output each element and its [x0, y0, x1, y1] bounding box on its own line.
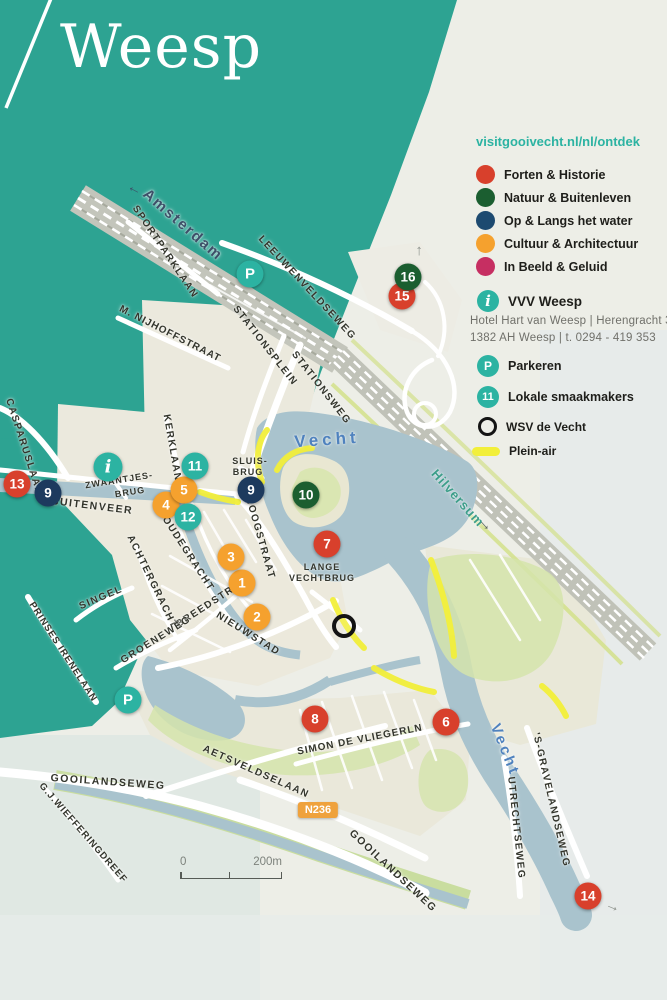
legend-category-row: Cultuur & Architectuur — [476, 234, 638, 253]
vvv-name: VVV Weesp — [508, 294, 582, 309]
marker-number: 5 — [180, 483, 188, 498]
category-dot-blue — [476, 211, 495, 230]
map-marker[interactable]: 5 — [171, 477, 198, 504]
map-marker[interactable]: 9 — [238, 477, 265, 504]
category-dot-red — [476, 165, 495, 184]
map-marker[interactable]: 8 — [302, 706, 329, 733]
scale-tick — [229, 872, 231, 878]
marker-number: P — [123, 692, 133, 709]
map-marker[interactable]: 14 — [575, 883, 602, 910]
category-label: In Beeld & Geluid — [504, 260, 608, 274]
map-marker[interactable]: 6 — [433, 709, 460, 736]
map-marker[interactable]: 1 — [229, 570, 256, 597]
vvv-address-line2: 1382 AH Weesp | t. 0294 - 419 353 — [470, 332, 656, 344]
plein-air-swatch — [472, 447, 500, 456]
map-marker[interactable]: 2 — [244, 604, 271, 631]
direction-arrow: → — [409, 244, 426, 259]
marker-number: 3 — [227, 550, 235, 565]
category-label: Natuur & Buitenleven — [504, 191, 631, 205]
map-marker[interactable]: 11 — [182, 453, 209, 480]
map-marker[interactable]: P — [115, 687, 142, 714]
parking-label: Parkeren — [508, 359, 562, 373]
marker-number: i — [105, 457, 112, 478]
map-marker[interactable]: 13 — [4, 471, 31, 498]
legend-url-link[interactable]: visitgooivecht.nl/nl/ontdek — [476, 134, 640, 149]
map-marker[interactable]: 7 — [314, 531, 341, 558]
legend-category-row: Natuur & Buitenleven — [476, 188, 631, 207]
scale-tick — [180, 872, 182, 878]
scale-line — [180, 872, 282, 879]
map-page: Weesp visitgooivecht.nl/nl/ontdek Forten… — [0, 0, 667, 1000]
legend-category-row: In Beeld & Geluid — [476, 257, 608, 276]
marker-number: 4 — [162, 498, 170, 513]
legend-category-row: Forten & Historie — [476, 165, 605, 184]
map-marker[interactable]: 12 — [175, 504, 202, 531]
legend-category-row: Op & Langs het water — [476, 211, 633, 230]
map-marker[interactable]: 3 — [218, 544, 245, 571]
map-marker[interactable]: 10 — [293, 482, 320, 509]
category-label: Forten & Historie — [504, 168, 605, 182]
category-dot-green — [476, 188, 495, 207]
legend-local-row: 11 Lokale smaakmakers — [477, 386, 634, 408]
marker-number: 10 — [298, 488, 313, 503]
category-dot-orange — [476, 234, 495, 253]
local-flavors-label: Lokale smaakmakers — [508, 390, 634, 404]
page-title: Weesp — [60, 12, 262, 82]
street-label: VECHTBRUG — [289, 573, 355, 583]
street-label: BRUG — [233, 467, 264, 477]
legend-parking-row: P Parkeren — [477, 355, 562, 377]
map-marker[interactable]: i — [94, 453, 123, 482]
marker-number: 6 — [442, 715, 450, 730]
marker-number: 8 — [311, 712, 319, 727]
marker-number: 12 — [180, 510, 195, 525]
street-label: SLUIS- — [232, 456, 268, 466]
plein-air-label: Plein-air — [509, 444, 556, 458]
scale-tick — [281, 872, 283, 878]
info-icon: i — [477, 290, 499, 312]
local-flavors-icon: 11 — [477, 386, 499, 408]
wsv-ring-icon — [478, 417, 497, 436]
scale-start-label: 0 — [180, 856, 186, 868]
parking-icon: P — [477, 355, 499, 377]
vvv-address-line1: Hotel Hart van Weesp | Herengracht 35 | — [470, 315, 667, 327]
wsv-label: WSV de Vecht — [506, 420, 586, 434]
legend-wsv-row: WSV de Vecht — [478, 417, 586, 436]
marker-number: 14 — [580, 889, 595, 904]
marker-number: 13 — [9, 477, 24, 492]
category-label: Cultuur & Architectuur — [504, 237, 638, 251]
marker-number: 2 — [253, 610, 261, 625]
marker-number: 16 — [400, 270, 415, 285]
marker-number: 1 — [238, 576, 246, 591]
map-marker[interactable]: 9 — [35, 480, 62, 507]
marker-number: 11 — [188, 459, 202, 474]
category-dot-pink — [476, 257, 495, 276]
marker-number: P — [245, 266, 255, 283]
marker-number: 9 — [247, 483, 255, 498]
legend-vvv-row: i VVV Weesp — [477, 290, 582, 312]
map-marker[interactable]: 16 — [395, 264, 422, 291]
marker-number: 9 — [44, 486, 52, 501]
street-label: LANGE — [304, 562, 341, 572]
marker-number: 15 — [394, 289, 409, 304]
map-marker[interactable]: P — [237, 261, 264, 288]
marker-number: 7 — [323, 537, 331, 552]
map-marker[interactable] — [332, 614, 356, 638]
legend-plein-air-row: Plein-air — [472, 444, 556, 458]
road-number-badge: N236 — [298, 802, 338, 818]
scale-end-label: 200m — [253, 856, 282, 868]
category-label: Op & Langs het water — [504, 214, 633, 228]
